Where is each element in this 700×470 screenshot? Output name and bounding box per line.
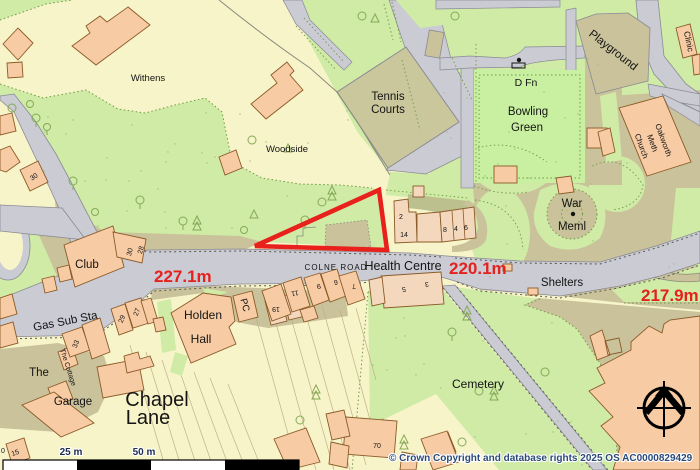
svg-text:217.9m: 217.9m — [641, 286, 699, 305]
svg-text:Holden: Holden — [184, 308, 222, 322]
svg-text:220.1m: 220.1m — [449, 259, 507, 278]
svg-text:Lane: Lane — [126, 407, 171, 429]
svg-text:Hall: Hall — [191, 332, 212, 346]
svg-text:Tennis: Tennis — [371, 91, 404, 103]
svg-text:2: 2 — [399, 214, 403, 221]
svg-text:The: The — [29, 367, 49, 379]
svg-text:Courts: Courts — [371, 104, 405, 116]
svg-text:70: 70 — [373, 443, 381, 450]
svg-text:© Crown Copyright and database: © Crown Copyright and database rights 20… — [389, 453, 693, 464]
svg-text:Green: Green — [511, 122, 543, 134]
svg-text:Meml: Meml — [558, 221, 586, 233]
svg-text:Garage: Garage — [54, 396, 92, 408]
svg-text:Health Centre: Health Centre — [364, 259, 441, 273]
svg-text:Woodside: Woodside — [266, 144, 308, 155]
svg-text:50 m: 50 m — [133, 447, 156, 458]
svg-text:COLNE ROAD: COLNE ROAD — [305, 263, 368, 272]
svg-text:Withens: Withens — [131, 73, 166, 84]
svg-text:19: 19 — [272, 305, 280, 312]
svg-text:Shelters: Shelters — [541, 277, 583, 289]
svg-text:8: 8 — [443, 227, 447, 234]
svg-text:14: 14 — [400, 232, 408, 239]
svg-text:0: 0 — [1, 448, 5, 455]
svg-text:Club: Club — [75, 259, 99, 271]
svg-text:War: War — [562, 198, 583, 210]
svg-text:D Fn: D Fn — [515, 77, 538, 89]
svg-text:11: 11 — [290, 288, 298, 296]
svg-text:25 m: 25 m — [60, 447, 83, 458]
svg-text:6: 6 — [464, 225, 468, 232]
svg-text:Bowling: Bowling — [508, 106, 548, 118]
svg-text:227.1m: 227.1m — [154, 267, 212, 286]
svg-text:4: 4 — [454, 226, 458, 233]
svg-text:Cemetery: Cemetery — [452, 377, 504, 391]
